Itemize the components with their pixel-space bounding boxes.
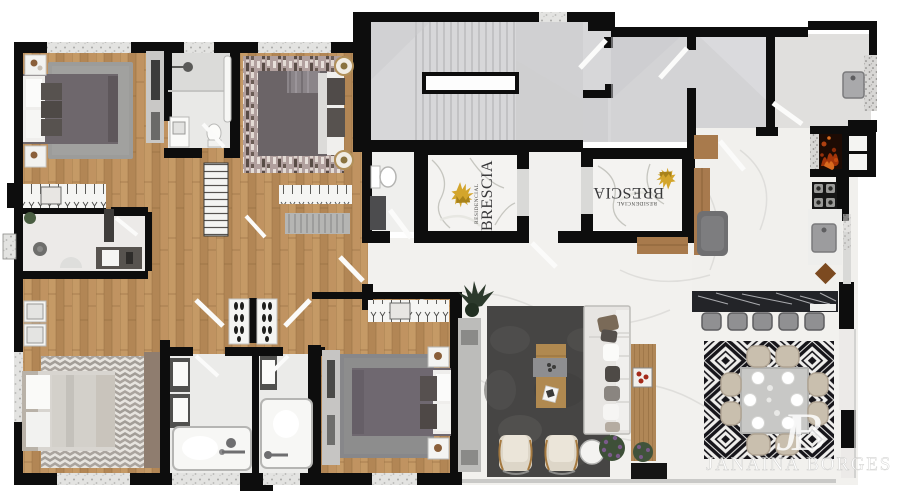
svg-text:RESIDENCIAL: RESIDENCIAL	[616, 200, 657, 206]
svg-text:JANAINA BORGES: JANAINA BORGES	[706, 454, 892, 475]
svg-text:BRESCIA: BRESCIA	[479, 160, 496, 231]
svg-text:BRESCIA: BRESCIA	[593, 184, 664, 201]
svg-text:B: B	[790, 402, 826, 462]
svg-text:RESIDENCIAL: RESIDENCIAL	[474, 183, 480, 224]
